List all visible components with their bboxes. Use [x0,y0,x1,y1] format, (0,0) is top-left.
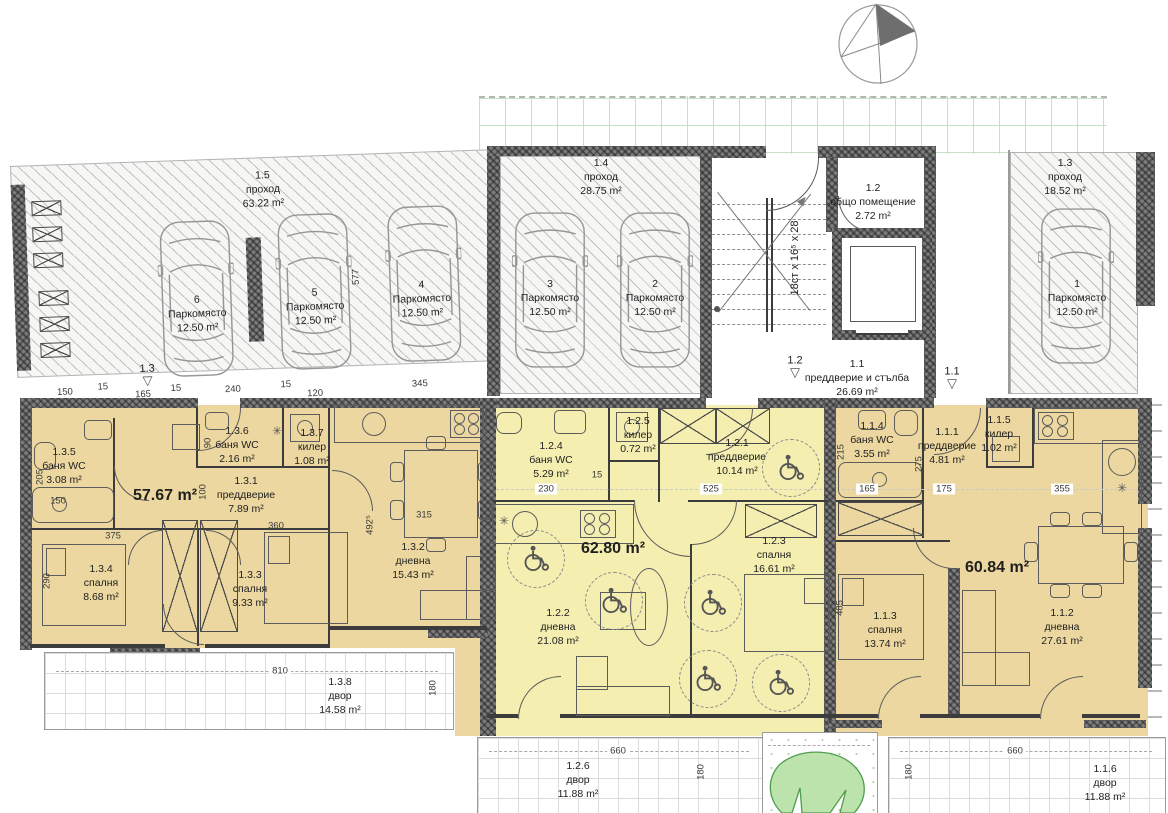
terrace-step [1084,720,1146,728]
burner [584,524,595,535]
dim: 315 [416,510,432,521]
bike-rack [40,342,71,358]
entry-triangle-icon: ▽ [947,377,957,390]
room-label-1-1-2: 1.1.2 дневна 27.61 m² [1041,607,1082,649]
dim: 240 [225,384,241,396]
stair-rail [771,198,773,332]
stair-step [712,249,826,250]
boundary-line [1008,150,1010,394]
zone-label-1-1: 1.1 преддверие и стълба 26.69 m² [805,358,909,400]
room-label-1-2-5: 1.2.5 килер 0.72 m² [620,415,656,457]
parking-label-2: 2 Паркомясто 12.50 m² [626,278,684,320]
entry-marker-1-1: 1.1 ▽ [944,367,959,390]
dim: 485 [835,600,846,616]
dim: 810 [269,666,291,677]
chair [1050,512,1070,526]
sofa [576,656,608,690]
dining-table [404,450,478,538]
sofa [466,556,496,620]
bike-rack [38,290,69,306]
room-label-1-1-3: 1.1.3 спалня 13.74 m² [864,610,905,652]
dim: 90 [203,438,214,449]
partition [492,500,634,502]
dining-table [1038,526,1124,584]
wall-bottom [487,714,518,718]
vent-icon: ✳ [1117,481,1127,495]
stair-step [712,264,826,265]
burner [468,424,479,435]
chair [426,436,446,450]
entry-marker-1-2: 1.2 ▽ [787,356,802,379]
dim: 150 [50,496,66,507]
stair-step [712,234,826,235]
wardrobe [745,504,817,538]
terrace-step [428,630,488,638]
north-arrow-icon [834,0,922,88]
wall [25,398,198,408]
apartment-total-60: 60.84 m² [965,559,1029,577]
floor-plan: 1.5 проход 63.22 m² 6 Паркомясто 12.50 m… [0,0,1168,813]
sofa [962,652,1030,686]
burner [1057,415,1068,426]
room-label-1-2-4: 1.2.4 баня WC 5.29 m² [529,440,573,482]
chair [390,462,404,482]
bathtub [32,487,114,523]
dim: 230 [535,484,557,495]
parking-label-1: 1 Паркомясто 12.50 m² [1048,278,1106,320]
burner [468,413,479,424]
room-label-1-1-5: 1.1.5 килер 1.02 m² [981,414,1017,456]
dim: 165 [856,484,878,495]
burner [599,513,610,524]
dim: 275 [914,456,925,472]
stair-step [712,279,826,280]
wall [1138,528,1152,688]
zone-label-1-5: 1.5 проход 63.22 m² [242,169,285,212]
room-label-1-1-1: 1.1.1 преддверие 4.81 m² [918,426,976,468]
wall [487,146,700,156]
room-label-1-3-5: 1.3.5 баня WC 3.08 m² [42,446,86,488]
dim: 375 [105,531,121,542]
dim: 180 [428,680,439,696]
dim: 15 [170,383,181,394]
wall-bottom [205,644,330,648]
dim: 215 [836,444,847,460]
wheelchair-icon [507,530,565,588]
pillow [804,578,826,604]
elevator-cab [850,246,916,322]
wheelchair-icon [585,572,643,630]
dim: 15 [97,381,108,392]
parking-label-5: 5 Паркомясто 12.50 m² [285,286,345,330]
burner [599,524,610,535]
yard-label-1-3-8: 1.3.8 двор 14.58 m² [319,676,360,718]
garage-left-block: 1.5 проход 63.22 m² 6 Паркомясто 12.50 m… [10,149,498,416]
wheelchair-icon [684,574,742,632]
washbasin [84,420,112,440]
dim: 290 [42,573,53,589]
wheelchair-icon [752,654,810,712]
bike-rack [32,226,63,242]
dim: 175 [933,484,955,495]
bike-rack [31,200,62,216]
dim: 660 [1004,746,1026,757]
zone-label-1-2: 1.2 общо помещение 2.72 m² [830,182,916,224]
wall [824,398,836,736]
pillow [46,548,66,576]
kitchen-sink [362,412,386,436]
dim: 355 [1051,484,1073,495]
partition [608,408,610,502]
room-label-1-1-4: 1.1.4 баня WC 3.55 m² [850,420,894,462]
wall [986,398,1140,408]
dim: 150 [57,386,73,398]
wall [487,146,500,396]
wall-interior [948,568,960,718]
elevator-door-line [856,333,908,335]
partition [986,466,1034,468]
parking-label-4: 4 Паркомясто 12.50 m² [392,278,452,322]
pillow [268,536,290,564]
wardrobe [838,502,924,536]
apartment-total-57: 57.67 m² [133,487,197,505]
room-label-1-3-3: 1.3.3 спалня 9.33 m² [232,569,268,611]
stair-start-dot [714,306,720,312]
chair [1050,584,1070,598]
parking-label-6: 6 Паркомясто 12.50 m² [167,293,227,337]
dim: 577 [350,269,362,285]
terrace-step [828,720,882,728]
dim-line [900,751,1152,752]
parking-label-3: 3 Паркомясто 12.50 m² [521,278,579,320]
dim: 180 [904,764,915,780]
stair-step [712,324,826,325]
wall [1136,152,1155,306]
shower [172,424,200,450]
chair [1082,584,1102,598]
vent-icon: ✳ [272,424,282,438]
wall-bottom [836,714,878,718]
dim: 525 [700,484,722,495]
stair-step [712,294,826,295]
wall [818,146,936,158]
burner [454,424,465,435]
washbasin [554,410,586,434]
stairs-note: 18ст х 16⁵ х 28 [789,220,801,295]
chair [390,500,404,520]
chair [478,500,492,520]
stair-rail [766,198,768,332]
wall-bottom [920,714,1040,718]
dim: 15 [592,470,603,481]
kitchen-sink [1108,448,1136,476]
room-label-1-2-1: 1.2.1 преддверие 10.14 m² [708,437,766,479]
dim: 15 [280,379,291,390]
wall-bottom [1082,714,1140,718]
dim: 205 [35,469,46,485]
zone-label-1-3: 1.3 проход 18.52 m² [1044,157,1085,199]
bike-rack [33,252,64,268]
burner [584,513,595,524]
yard-label-1-1-6: 1.1.6 двор 11.88 m² [1085,763,1126,805]
wall [700,146,712,398]
dim: 492⁵ [365,515,376,535]
yard-1-3-8 [44,652,454,730]
burner [1042,426,1053,437]
toilet [894,410,918,436]
stair-step [712,219,826,220]
burner [1057,426,1068,437]
dim-line [56,671,438,672]
entry-triangle-icon: ▽ [790,366,800,379]
wheelchair-icon [679,650,737,708]
entry-marker-1-3: 1.3 ▽ [139,364,155,388]
dim: 360 [268,521,284,532]
entry-triangle-icon: ▽ [142,374,152,387]
room-label-1-3-7: 1.3.7 килер 1.08 m² [294,427,330,469]
dim-line [768,745,870,746]
yard-label-1-2-6: 1.2.6 двор 11.88 m² [558,760,599,802]
burner [454,413,465,424]
partition [608,460,660,462]
room-label-1-3-2: 1.3.2 дневна 15.43 m² [392,541,433,583]
partition [282,408,284,468]
apartment-total-62: 62.80 m² [581,540,645,558]
dim-line [842,489,1138,490]
zone-label-1-4: 1.4 проход 28.75 m² [580,157,621,199]
chair [1082,512,1102,526]
bike-rack [39,316,70,332]
dim: 660 [607,746,629,757]
dim: 180 [696,764,707,780]
room-label-1-3-4: 1.3.4 спалня 8.68 m² [83,563,119,605]
room-label-1-3-6: 1.3.6 баня WC 2.16 m² [215,425,259,467]
sofa [576,686,670,716]
room-label-1-3-1: 1.3.1 преддверие 7.89 m² [217,475,275,517]
dim: 100 [198,484,209,500]
toilet [496,412,522,434]
wall [20,398,32,650]
burner [1042,415,1053,426]
room-label-1-2-3: 1.2.3 спалня 16.61 m² [753,535,794,577]
vent-icon: ✳ [499,514,509,528]
chair [478,462,492,482]
dim: 345 [412,378,428,390]
chair [1124,542,1138,562]
room-label-1-2-2: 1.2.2 дневна 21.08 m² [537,607,578,649]
